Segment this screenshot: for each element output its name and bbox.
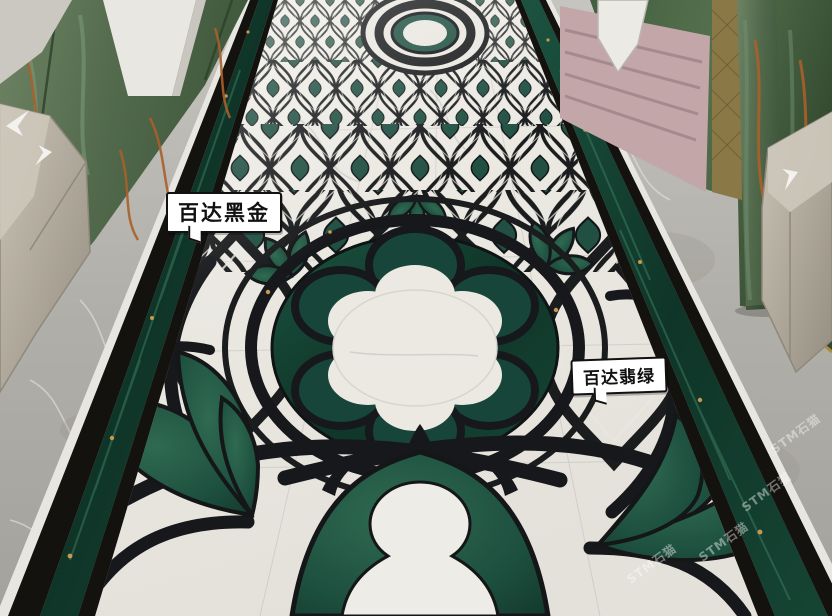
callout-jade-green-label: 百达翡绿 <box>583 367 656 390</box>
scene-svg <box>0 0 832 616</box>
callout-black-gold: 百达黑金 <box>166 192 282 233</box>
callout-black-gold-label: 百达黑金 <box>178 201 270 225</box>
callout-jade-green: 百达翡绿 <box>570 356 667 395</box>
gold-mesh <box>712 0 742 200</box>
corridor-render: 百达黑金 百达翡绿 STM石猫 STM石猫 STM石猫 STM石猫 <box>0 0 832 616</box>
